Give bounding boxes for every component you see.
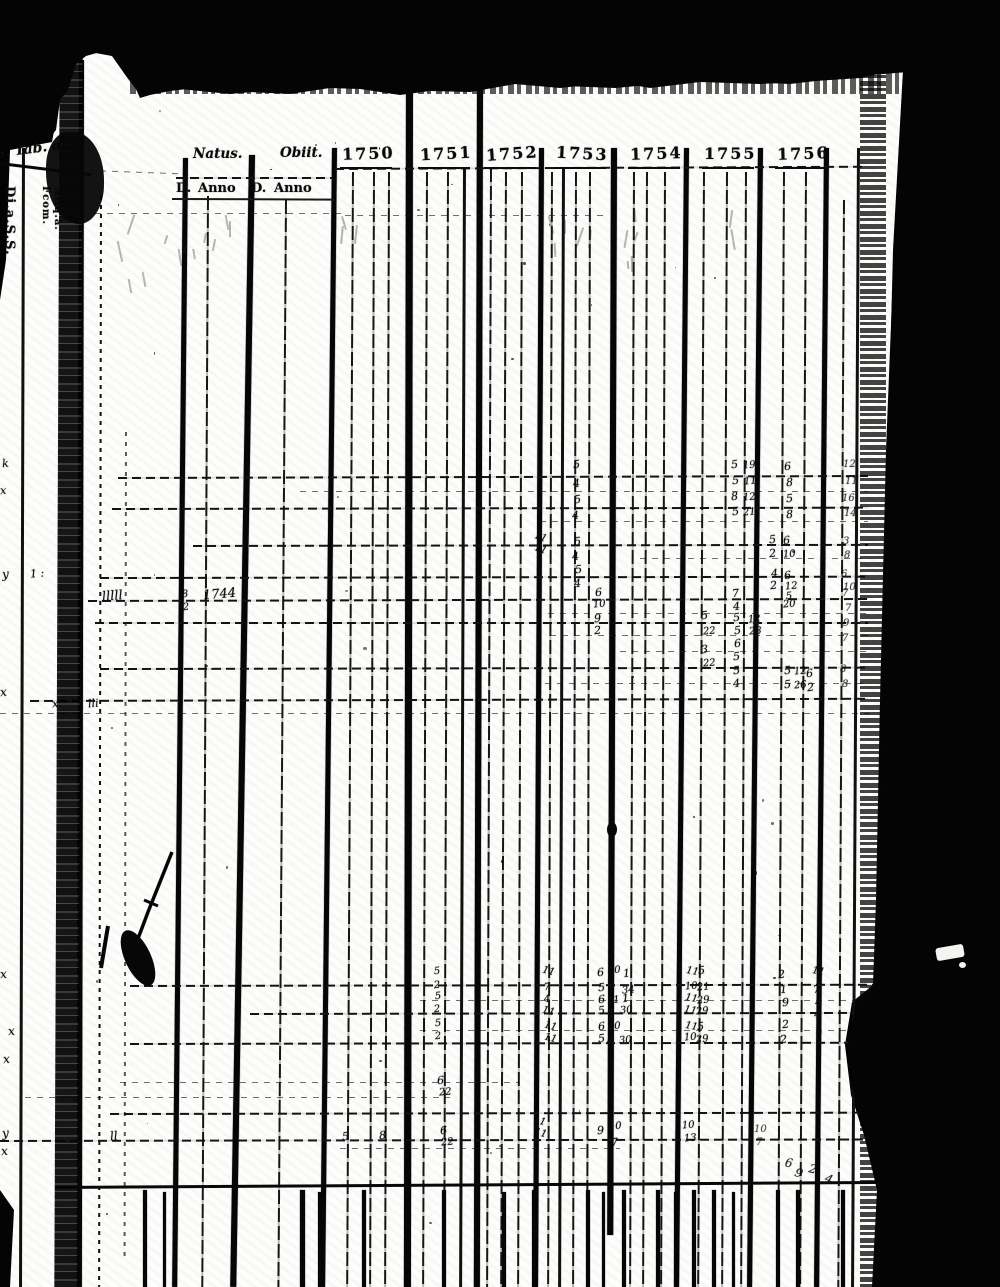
handwritten-entry: 1 bbox=[623, 968, 631, 980]
vertical-rule bbox=[712, 1190, 716, 1287]
paper-speck bbox=[499, 1145, 500, 1147]
margin-side-label: Fcom. bbox=[40, 186, 51, 225]
year-underline bbox=[484, 167, 536, 169]
column-header-obiit: Obiit. bbox=[280, 145, 322, 161]
vertical-rule bbox=[362, 1190, 366, 1287]
handwritten-entry: 30 bbox=[620, 1005, 634, 1016]
handwritten-entry: 5 bbox=[734, 625, 742, 637]
handwritten-entry: 20 bbox=[783, 599, 797, 610]
handwritten-entry: 5 bbox=[598, 1033, 606, 1045]
column-header-natus: Natus. bbox=[193, 146, 242, 162]
handwritten-entry: 5 bbox=[701, 610, 709, 622]
handwritten-entry: 4 bbox=[814, 1009, 822, 1021]
paper-speck bbox=[417, 209, 420, 211]
handwritten-entry: 2 bbox=[769, 548, 777, 560]
handwritten-entry: 11 bbox=[744, 476, 758, 487]
year-header: 1754 bbox=[630, 143, 683, 164]
handwritten-entry: 12 bbox=[743, 492, 757, 503]
handwritten-entry: 5 bbox=[733, 665, 741, 677]
handwritten-entry: 26 bbox=[794, 680, 808, 691]
horizontal-rule bbox=[640, 558, 868, 559]
handwritten-entry: 8 bbox=[379, 1130, 387, 1142]
handwritten-entry: k bbox=[2, 458, 10, 470]
handwritten-entry: 28 bbox=[749, 626, 763, 637]
handwritten-entry: 8 bbox=[840, 665, 846, 675]
horizontal-rule bbox=[540, 521, 868, 522]
year-header: 1750 bbox=[342, 143, 395, 164]
handwritten-entry: 3 bbox=[843, 537, 849, 547]
vertical-rule bbox=[602, 1192, 605, 1287]
handwritten-entry: 1 bbox=[780, 984, 788, 996]
paper-speck bbox=[206, 665, 208, 667]
handwritten-entry: 10 bbox=[593, 599, 607, 610]
horizontal-rule bbox=[420, 1000, 874, 1001]
handwritten-entry: 22 bbox=[441, 1137, 455, 1148]
handwritten-entry: 5 bbox=[769, 534, 777, 546]
handwritten-entry: x bbox=[2, 1053, 10, 1066]
vertical-rule bbox=[841, 1190, 845, 1287]
handwritten-entry: 8 bbox=[182, 590, 189, 601]
handwritten-entry: 6 bbox=[598, 1021, 606, 1033]
handwritten-entry: 19 bbox=[743, 460, 757, 471]
year-underline bbox=[702, 167, 754, 169]
handwritten-entry: 9 bbox=[843, 619, 849, 629]
handwritten-entry: 10 bbox=[608, 1021, 622, 1032]
handwritten-entry: x bbox=[0, 485, 7, 497]
handwritten-entry: 7 bbox=[813, 984, 821, 996]
handwritten-entry: 29 bbox=[696, 1034, 710, 1045]
vertical-rule bbox=[318, 1192, 321, 1287]
paper-speck bbox=[771, 822, 774, 825]
handwritten-entry: 4 bbox=[815, 997, 823, 1009]
handwritten-entry: 6 bbox=[734, 638, 742, 650]
year-underline bbox=[554, 167, 606, 169]
handwritten-entry: 16 bbox=[842, 494, 855, 504]
handwritten-entry: 6 bbox=[806, 668, 814, 680]
handwritten-entry: 8 bbox=[842, 680, 848, 690]
horizontal-rule bbox=[620, 651, 868, 652]
horizontal-rule bbox=[420, 1030, 874, 1031]
year-header: 1751 bbox=[420, 143, 473, 165]
handwritten-entry: 22 bbox=[703, 658, 717, 669]
vertical-rule bbox=[532, 1190, 536, 1287]
handwritten-entry: 4 bbox=[607, 1035, 615, 1047]
handwritten-entry: 10 bbox=[609, 1121, 623, 1132]
handwritten-entry: 2 bbox=[183, 603, 190, 614]
handwritten-entry: 21 bbox=[743, 507, 757, 518]
handwritten-entry: 4 bbox=[574, 578, 582, 590]
paper-speck bbox=[501, 860, 503, 863]
handwritten-entry: 5 bbox=[435, 1019, 442, 1030]
horizontal-rule bbox=[120, 1082, 520, 1083]
faint-scribble bbox=[553, 243, 556, 257]
handwritten-entry: 2 bbox=[782, 1019, 790, 1031]
subheader-day-anno: Anno bbox=[198, 181, 236, 196]
handwritten-entry: 10 bbox=[682, 1120, 696, 1131]
handwritten-entry: 10 bbox=[754, 1125, 767, 1135]
faint-scribble bbox=[564, 220, 566, 234]
handwritten-entry: 2 bbox=[435, 1032, 442, 1043]
handwritten-entry: 5 bbox=[574, 536, 582, 548]
handwritten-entry: 6 bbox=[784, 1156, 794, 1169]
handwritten-entry: 6 bbox=[784, 461, 792, 473]
handwritten-entry: 5 bbox=[697, 1021, 705, 1033]
handwritten-entry: 5 bbox=[784, 665, 792, 677]
handwritten-entry: 8 bbox=[786, 509, 794, 521]
handwritten-entry: x bbox=[0, 686, 7, 699]
handwritten-entry: 22 bbox=[439, 1087, 453, 1098]
handwritten-entry: x. bbox=[52, 698, 63, 710]
handwritten-entry: 11 bbox=[811, 966, 825, 978]
horizontal-rule bbox=[300, 491, 868, 492]
handwritten-entry: 1 : bbox=[30, 567, 45, 579]
paper-speck bbox=[693, 816, 695, 817]
film-white-speck bbox=[959, 962, 966, 968]
handwritten-entry: 7 bbox=[816, 1040, 822, 1049]
handwritten-entry: 12 bbox=[843, 460, 856, 470]
vertical-rule bbox=[692, 1190, 696, 1287]
handwritten-entry: 4 bbox=[572, 551, 580, 563]
handwritten-entry: 5 bbox=[698, 965, 706, 977]
handwritten-entry: 2 bbox=[434, 1005, 441, 1016]
handwritten-entry: 4 bbox=[733, 678, 741, 690]
handwritten-entry: 4 bbox=[607, 1007, 615, 1019]
handwritten-entry: 2 bbox=[594, 625, 602, 637]
handwritten-entry: 5 bbox=[598, 1005, 606, 1017]
handwritten-entry: x bbox=[0, 1145, 8, 1158]
handwritten-entry: 21 bbox=[697, 982, 711, 993]
handwritten-entry: 10 bbox=[608, 965, 622, 976]
vertical-rule bbox=[816, 1192, 819, 1287]
handwritten-entry: 2 bbox=[807, 682, 815, 694]
handwritten-entry: x bbox=[0, 968, 7, 981]
handwritten-entry: 6 bbox=[784, 570, 792, 582]
handwritten-entry: 4 bbox=[544, 995, 551, 1006]
handwritten-entry: 5 bbox=[574, 494, 582, 506]
handwritten-entry: 5 bbox=[733, 612, 741, 624]
handwritten-entry: 1 bbox=[622, 993, 630, 1005]
handwritten-entry: 5 bbox=[573, 459, 581, 471]
paper-speck bbox=[762, 799, 764, 802]
year-header: 1753 bbox=[556, 143, 609, 165]
paper-speck bbox=[154, 352, 155, 355]
handwritten-entry: 1744 bbox=[202, 587, 236, 603]
margin-side-label: Di.a.S.S. bbox=[2, 186, 17, 256]
horizontal-rule bbox=[25, 1097, 450, 1098]
paper-speck bbox=[773, 977, 776, 979]
handwritten-entry: 7 bbox=[732, 588, 740, 600]
handwritten-entry: y bbox=[1, 568, 9, 581]
paper-speck bbox=[511, 358, 513, 361]
handwritten-entry: 2 bbox=[770, 580, 778, 592]
handwritten-entry: 5 bbox=[732, 475, 740, 487]
year-underline bbox=[418, 167, 470, 169]
handwritten-entry: 9 bbox=[597, 1125, 605, 1137]
handwritten-entry: 5 bbox=[342, 1131, 350, 1143]
handwritten-entry: 13 bbox=[684, 1133, 698, 1144]
handwritten-entry: 30 bbox=[619, 1035, 633, 1046]
vertical-rule bbox=[674, 1192, 677, 1287]
handwritten-entry: 7 bbox=[842, 634, 848, 644]
vertical-rule bbox=[143, 1190, 147, 1287]
subheader-day-anno: D. bbox=[176, 181, 191, 196]
handwritten-entry: 7 bbox=[544, 983, 551, 994]
year-underline bbox=[628, 167, 680, 169]
handwritten-entry: 9 bbox=[594, 613, 602, 625]
handwritten-entry: 6 bbox=[440, 1125, 448, 1137]
paper-speck bbox=[490, 1152, 492, 1154]
year-underline bbox=[775, 167, 827, 169]
horizontal-rule bbox=[345, 215, 608, 216]
handwritten-entry: 7 bbox=[842, 589, 848, 599]
year-header: 1752 bbox=[485, 142, 539, 165]
handwritten-entry: 8 bbox=[844, 551, 850, 561]
ink-dot-on-rule bbox=[607, 822, 617, 837]
vertical-rule bbox=[656, 1190, 660, 1287]
handwritten-entry: 7 bbox=[845, 604, 851, 614]
handwritten-entry: 5 bbox=[784, 679, 792, 691]
year-header: 1755 bbox=[704, 144, 757, 163]
ink-blot-mark bbox=[90, 830, 210, 1010]
handwritten-entry: 14 bbox=[844, 509, 857, 519]
handwritten-entry: ll bbox=[109, 1130, 118, 1143]
scanned-register-page: Natus. Obiit. ß. Tab. a. ld 175017511752… bbox=[0, 0, 1000, 1287]
vertical-rule bbox=[732, 1192, 735, 1287]
handwritten-entry: 22 bbox=[703, 626, 717, 637]
handwritten-entry: 7 bbox=[608, 984, 616, 996]
year-underline bbox=[340, 167, 392, 169]
paper-speck bbox=[714, 277, 716, 278]
horizontal-rule bbox=[176, 177, 332, 179]
handwritten-entry: 5 bbox=[435, 992, 442, 1003]
handwritten-entry: 8 bbox=[731, 491, 739, 503]
handwritten-entry: 7 bbox=[756, 1138, 762, 1148]
handwritten-entry: 6 bbox=[437, 1075, 445, 1087]
handwritten-entry: 5 bbox=[575, 564, 583, 576]
vertical-rule bbox=[442, 1190, 446, 1287]
handwritten-entry: 6 bbox=[783, 535, 791, 547]
paper-speck bbox=[106, 1213, 108, 1214]
handwritten-entry: 5 bbox=[786, 493, 794, 505]
handwritten-entry: 4 bbox=[572, 510, 580, 522]
handwritten-entry: x bbox=[7, 1025, 15, 1038]
handwritten-entry: lli bbox=[88, 698, 99, 710]
handwritten-entry: 5 bbox=[598, 982, 606, 994]
handwritten-entry: 4 bbox=[771, 568, 779, 580]
handwritten-entry: 5 bbox=[434, 967, 441, 978]
vertical-rule bbox=[300, 1190, 305, 1287]
handwritten-entry: 7 bbox=[611, 1137, 619, 1149]
paper-speck bbox=[363, 647, 366, 650]
paper-speck bbox=[778, 935, 781, 937]
vertical-rule bbox=[163, 1192, 166, 1287]
handwritten-entry: 29 bbox=[696, 1006, 710, 1017]
handwritten-entry: 10 bbox=[783, 549, 797, 560]
handwritten-entry: 3 bbox=[701, 644, 709, 656]
handwritten-entry: 6 bbox=[595, 587, 603, 599]
subheader-day-anno: D. bbox=[251, 181, 266, 196]
handwritten-entry: y bbox=[1, 1127, 9, 1140]
vertical-rule bbox=[776, 1190, 780, 1287]
paper-speck bbox=[226, 866, 228, 869]
vertical-rule bbox=[502, 1192, 506, 1287]
handwritten-entry: 6 bbox=[597, 967, 605, 979]
handwritten-entry: 5 bbox=[732, 506, 740, 518]
paper-speck bbox=[345, 590, 348, 592]
handwritten-entry: 11 bbox=[845, 477, 858, 487]
handwritten-entry: 5 bbox=[731, 459, 739, 471]
subheader-day-anno: Anno bbox=[274, 181, 312, 196]
margin-side-label: Aliq.a. bbox=[52, 188, 63, 231]
vertical-rule bbox=[622, 1190, 626, 1287]
handwritten-entry: 2 bbox=[780, 1034, 788, 1046]
handwritten-entry: 9 bbox=[782, 997, 790, 1009]
horizontal-rule bbox=[545, 683, 870, 684]
vertical-rule bbox=[796, 1190, 800, 1287]
year-header: 1756 bbox=[777, 143, 830, 164]
handwritten-entry: 12 bbox=[748, 614, 762, 625]
horizontal-rule bbox=[340, 1148, 620, 1149]
handwritten-entry: 2 bbox=[434, 981, 441, 992]
paper-speck bbox=[523, 262, 526, 265]
handwritten-entry: 2 bbox=[778, 969, 786, 981]
paper-speck bbox=[549, 224, 550, 226]
faint-scribble bbox=[626, 261, 629, 269]
handwritten-entry: lllll bbox=[101, 589, 123, 604]
vertical-rule bbox=[586, 1190, 590, 1287]
handwritten-entry: 6 bbox=[841, 570, 847, 580]
handwritten-entry: 5 bbox=[733, 651, 741, 663]
horizontal-rule bbox=[0, 713, 870, 714]
handwritten-entry: 8 bbox=[786, 477, 794, 489]
handwritten-entry: 4 bbox=[573, 478, 581, 490]
